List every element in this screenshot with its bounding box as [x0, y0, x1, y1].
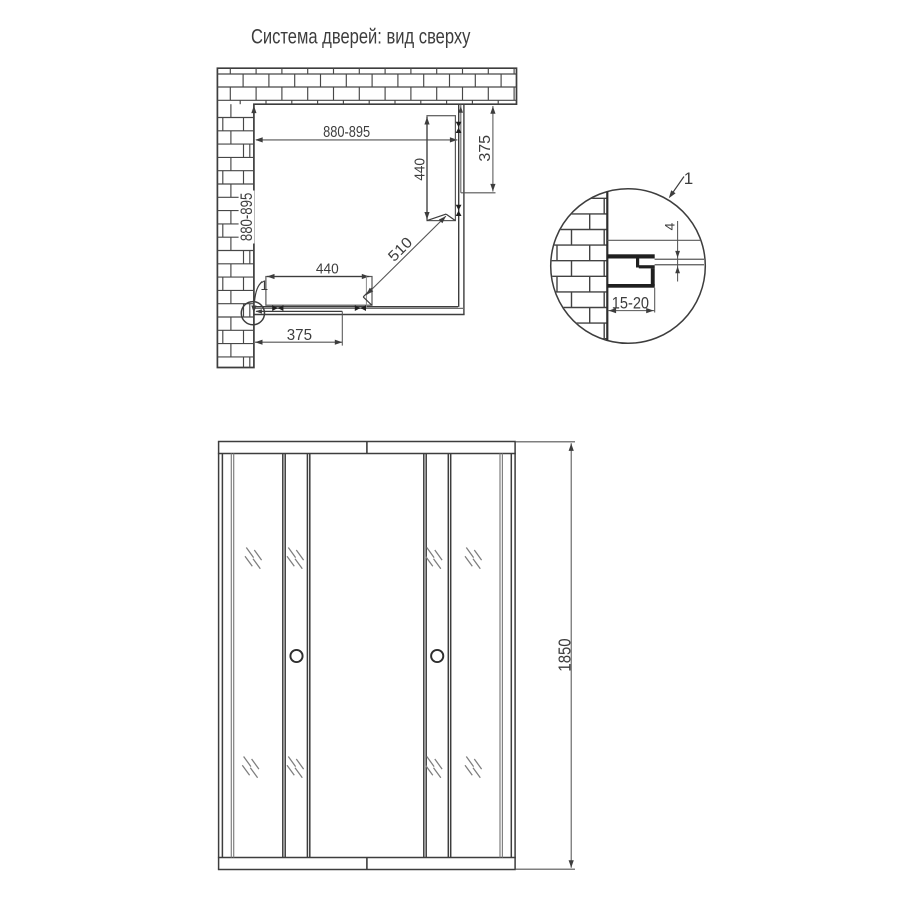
svg-text:Система дверей: вид сверху: Система дверей: вид сверху — [251, 26, 471, 49]
svg-text:375: 375 — [477, 135, 494, 162]
svg-text:440: 440 — [316, 262, 339, 278]
svg-text:440: 440 — [413, 158, 429, 181]
svg-text:4: 4 — [661, 222, 677, 230]
svg-text:1850: 1850 — [555, 638, 575, 671]
svg-text:15-20: 15-20 — [612, 295, 649, 313]
svg-text:880-895: 880-895 — [323, 124, 370, 141]
svg-text:375: 375 — [287, 327, 312, 344]
svg-text:1: 1 — [684, 169, 693, 188]
svg-text:880-895: 880-895 — [238, 193, 256, 242]
svg-text:1: 1 — [260, 277, 268, 293]
